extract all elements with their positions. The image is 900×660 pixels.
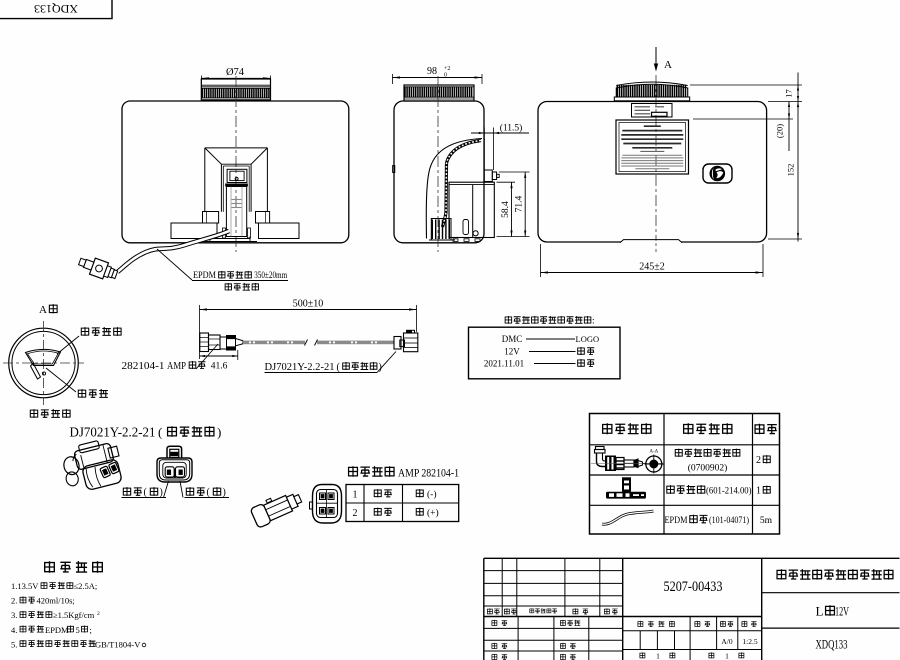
- svg-text:XDQ133: XDQ133: [34, 2, 78, 16]
- svg-text:1: 1: [656, 652, 660, 660]
- svg-text:A-A: A-A: [649, 450, 658, 455]
- svg-text:A: A: [664, 59, 672, 71]
- svg-text:5: 5: [76, 625, 80, 635]
- svg-text:5207-00433: 5207-00433: [664, 579, 723, 595]
- svg-text:4.: 4.: [11, 625, 17, 635]
- svg-text:≥1.5Kgf/cm: ≥1.5Kgf/cm: [53, 610, 95, 620]
- svg-text::: :: [592, 317, 595, 327]
- svg-text:AMP 282104-1: AMP 282104-1: [398, 466, 459, 480]
- svg-text:EPDM: EPDM: [45, 625, 69, 635]
- svg-text:AMP: AMP: [167, 361, 186, 372]
- svg-text:): ): [223, 487, 226, 498]
- svg-text:12V: 12V: [835, 604, 849, 619]
- svg-text:L: L: [816, 604, 824, 619]
- svg-text:2.: 2.: [11, 596, 17, 606]
- svg-text:DJ7021Y-2.2-21: DJ7021Y-2.2-21: [265, 362, 335, 373]
- svg-text:41.6: 41.6: [211, 362, 228, 372]
- svg-text:1: 1: [725, 652, 729, 660]
- svg-text:245±2: 245±2: [639, 262, 665, 273]
- svg-text:2: 2: [97, 611, 100, 617]
- svg-text:58.4: 58.4: [501, 201, 511, 218]
- svg-text:(20): (20): [775, 124, 785, 138]
- svg-text:71.4: 71.4: [515, 195, 525, 212]
- svg-text:DMC: DMC: [502, 334, 523, 344]
- svg-text:(-): (-): [427, 489, 437, 500]
- svg-text:DJ7021Y-2.2-21: DJ7021Y-2.2-21: [70, 425, 156, 440]
- svg-text:Ø74: Ø74: [226, 67, 245, 78]
- svg-text:(0700902): (0700902): [688, 463, 728, 474]
- svg-text:+2: +2: [444, 66, 450, 72]
- svg-text:): ): [217, 425, 221, 440]
- svg-text:500±10: 500±10: [293, 299, 324, 310]
- svg-text:152: 152: [786, 164, 796, 177]
- svg-text:2021.11.01: 2021.11.01: [484, 359, 524, 369]
- svg-text:LOGO: LOGO: [576, 334, 600, 344]
- svg-text:GB/T1804-V: GB/T1804-V: [95, 639, 141, 649]
- svg-text:0: 0: [444, 73, 447, 79]
- svg-text:EPDM: EPDM: [193, 270, 216, 280]
- svg-text:≤2.5A;: ≤2.5A;: [74, 581, 98, 591]
- svg-text:(+): (+): [427, 508, 439, 519]
- svg-text:XDQ133: XDQ133: [816, 638, 848, 652]
- svg-text:420ml/10s;: 420ml/10s;: [37, 596, 75, 606]
- svg-text:1:2.5: 1:2.5: [742, 637, 757, 646]
- svg-text:(: (: [158, 425, 162, 440]
- svg-text:A/0: A/0: [721, 637, 733, 646]
- svg-text:17: 17: [784, 89, 794, 98]
- svg-text:3.: 3.: [11, 610, 17, 620]
- svg-text:282104-1: 282104-1: [122, 361, 165, 372]
- svg-text:(101-04071): (101-04071): [709, 515, 749, 526]
- svg-text:5.: 5.: [11, 639, 17, 649]
- svg-text:12V: 12V: [504, 347, 520, 357]
- svg-text:): ): [160, 487, 163, 498]
- svg-text:EPDM: EPDM: [665, 516, 688, 526]
- svg-text:2: 2: [756, 455, 761, 466]
- svg-text:98: 98: [427, 66, 437, 77]
- svg-text:1.13.5V: 1.13.5V: [11, 581, 39, 591]
- svg-text:1: 1: [756, 486, 761, 497]
- svg-text:350±20mm: 350±20mm: [254, 270, 287, 280]
- svg-text:(601-214.00): (601-214.00): [706, 486, 752, 497]
- svg-text:2: 2: [353, 508, 358, 519]
- svg-text:;: ;: [90, 625, 92, 635]
- svg-text:A: A: [39, 304, 47, 316]
- svg-text:5m: 5m: [760, 516, 773, 526]
- svg-text:(11.5): (11.5): [500, 123, 523, 134]
- svg-text:1: 1: [353, 490, 358, 501]
